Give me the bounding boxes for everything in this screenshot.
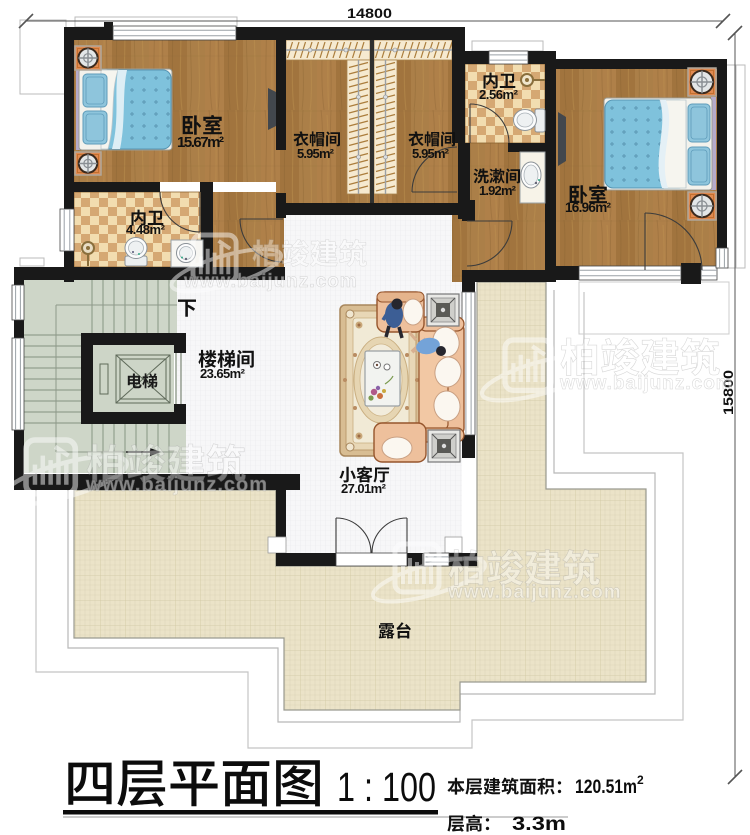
- svg-text:4.48m²: 4.48m²: [126, 222, 166, 237]
- svg-text:2.56m²: 2.56m²: [479, 87, 519, 102]
- svg-text:27.01m²: 27.01m²: [341, 481, 387, 496]
- svg-text:3.3m: 3.3m: [512, 814, 566, 835]
- svg-text:www.baijunz.com: www.baijunz.com: [559, 373, 734, 394]
- svg-text:16.96m²: 16.96m²: [565, 200, 612, 215]
- svg-text:www.baijunz.com: www.baijunz.com: [85, 474, 268, 496]
- svg-text:1.92m²: 1.92m²: [479, 183, 517, 198]
- svg-text:14800: 14800: [347, 5, 392, 21]
- svg-text:15.67m²: 15.67m²: [177, 134, 224, 151]
- svg-text:120.51m: 120.51m: [575, 777, 637, 798]
- svg-text:5.95m²: 5.95m²: [412, 146, 450, 161]
- svg-text:www.baijunz.com: www.baijunz.com: [183, 271, 358, 292]
- svg-text:23.65m²: 23.65m²: [200, 366, 246, 381]
- svg-text:5.95m²: 5.95m²: [297, 146, 335, 161]
- svg-text:2: 2: [637, 773, 644, 787]
- svg-text:www.baijunz.com: www.baijunz.com: [447, 582, 622, 603]
- svg-text:1 : 100: 1 : 100: [337, 764, 436, 810]
